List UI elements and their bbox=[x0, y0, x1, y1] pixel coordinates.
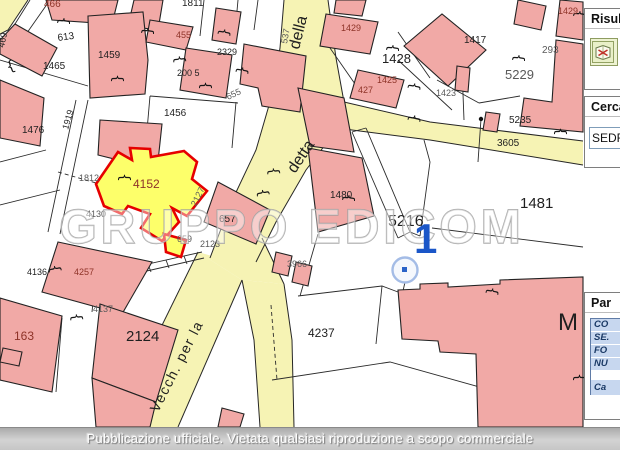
parcel-number-label: 1480 bbox=[330, 190, 353, 201]
brace-symbol: { bbox=[510, 53, 527, 63]
parcel-number-label: 1429 bbox=[558, 6, 578, 16]
building-polygon bbox=[0, 80, 44, 146]
brace-symbol: { bbox=[68, 312, 85, 322]
parcel-number-label: 1417 bbox=[464, 35, 487, 46]
parcel-number-label: 1481 bbox=[520, 195, 553, 212]
parcel-number-label: 1811 bbox=[182, 0, 204, 9]
brace-symbol: { bbox=[116, 173, 132, 182]
brace-symbol: { bbox=[139, 26, 156, 36]
parcel-attribute-row[interactable]: Ca bbox=[591, 380, 620, 395]
parcel-number-label: 3605 bbox=[497, 138, 520, 149]
building-polygon bbox=[398, 277, 583, 427]
selected-point-dot bbox=[402, 267, 407, 272]
map-canvas[interactable]: {{{{{{{{{{{{{{{{{{{{{{ 46646961314651459… bbox=[0, 0, 620, 427]
parcel-number-label: 4152 bbox=[133, 177, 160, 191]
parcel-number-label: 2329 bbox=[217, 47, 237, 57]
parcel-number-label: M bbox=[558, 309, 578, 336]
building-polygon bbox=[212, 8, 241, 44]
cadastral-map-app: {{{{{{{{{{{{{{{{{{{{{{ 46646961314651459… bbox=[0, 0, 620, 450]
parcel-attribute-row[interactable]: SE. bbox=[591, 332, 620, 344]
parcel-number-label: 1456 bbox=[164, 108, 187, 119]
search-input[interactable] bbox=[589, 127, 620, 149]
results-panel-title: Risult bbox=[585, 9, 620, 29]
footer-disclaimer: Pubblicazione ufficiale. Vietata qualsia… bbox=[0, 428, 620, 450]
building-polygon bbox=[404, 14, 486, 86]
map-marker-1[interactable]: 1 bbox=[414, 215, 437, 262]
parcel-number-label: 163 bbox=[14, 329, 34, 343]
building-polygon bbox=[483, 112, 500, 132]
parcel-number-label: 1465 bbox=[43, 61, 66, 72]
parcel-number-label: 1476 bbox=[22, 125, 45, 136]
brace-symbol: { bbox=[406, 80, 423, 92]
parcel-number-label: 466 bbox=[44, 0, 61, 10]
building-polygon bbox=[0, 298, 62, 392]
brace-symbol: { bbox=[234, 64, 251, 76]
parcel-number-label: 4257 bbox=[74, 267, 94, 277]
parcel-panel: Par COSE.FONUCa bbox=[584, 292, 620, 420]
utility-node-dot bbox=[479, 117, 483, 121]
parcel-number-label: 1425 bbox=[377, 75, 397, 85]
parcel-number-label: 4237 bbox=[308, 326, 335, 340]
parcel-attribute-row[interactable]: CO bbox=[591, 319, 620, 331]
parcel-number-label: 1919 bbox=[60, 109, 75, 131]
parcel-number-label: 613 bbox=[57, 31, 75, 44]
building-polygon bbox=[455, 66, 470, 92]
brace-symbol: { bbox=[109, 74, 125, 83]
map-report-button[interactable] bbox=[590, 38, 618, 66]
parcel-number-label: 293 bbox=[542, 45, 559, 56]
search-panel: Cerca bbox=[584, 96, 620, 168]
brace-symbol: { bbox=[552, 127, 568, 136]
brace-symbol: { bbox=[197, 81, 213, 90]
building-polygon bbox=[334, 0, 366, 16]
footer-bar: Pubblicazione ufficiale. Vietata qualsia… bbox=[0, 427, 620, 450]
watermark-text: GRUPPO EDICOM bbox=[59, 201, 524, 254]
parcel-number-label: 455 bbox=[176, 30, 191, 40]
parcel-number-label: 1428 bbox=[382, 51, 411, 66]
building-polygon bbox=[218, 408, 244, 427]
parcel-number-label: 4137 bbox=[93, 304, 113, 314]
parcel-number-label: 5235 bbox=[509, 115, 532, 126]
parcel-number-label: 1459 bbox=[98, 50, 121, 61]
parcel-number-label: 1812 bbox=[79, 173, 99, 183]
parcel-attribute-row[interactable]: FO bbox=[591, 345, 620, 357]
parcel-number-label: 427 bbox=[358, 85, 373, 95]
map-report-icon bbox=[592, 41, 614, 63]
search-panel-title: Cerca bbox=[585, 97, 620, 117]
parcel-number-label: 2124 bbox=[126, 328, 159, 345]
parcel-number-label: 4136 bbox=[27, 267, 47, 277]
parcel-number-label: 5229 bbox=[505, 67, 534, 82]
parcel-number-label: 200 5 bbox=[177, 68, 200, 78]
parcel-panel-title: Par bbox=[585, 293, 620, 313]
parcel-number-label: 1423 bbox=[436, 88, 456, 98]
building-polygon bbox=[514, 0, 546, 30]
parcel-table: COSE.FONUCa bbox=[590, 318, 620, 395]
parcel-attribute-row[interactable]: NU bbox=[591, 358, 620, 370]
brace-symbol: { bbox=[265, 166, 282, 176]
parcel-number-label: 1429 bbox=[341, 23, 361, 33]
building-polygon bbox=[240, 44, 306, 112]
brace-symbol: { bbox=[171, 54, 188, 64]
results-panel: Risult bbox=[584, 8, 620, 90]
parcel-number-label: 3966 bbox=[287, 259, 307, 269]
brace-symbol: { bbox=[55, 16, 72, 26]
